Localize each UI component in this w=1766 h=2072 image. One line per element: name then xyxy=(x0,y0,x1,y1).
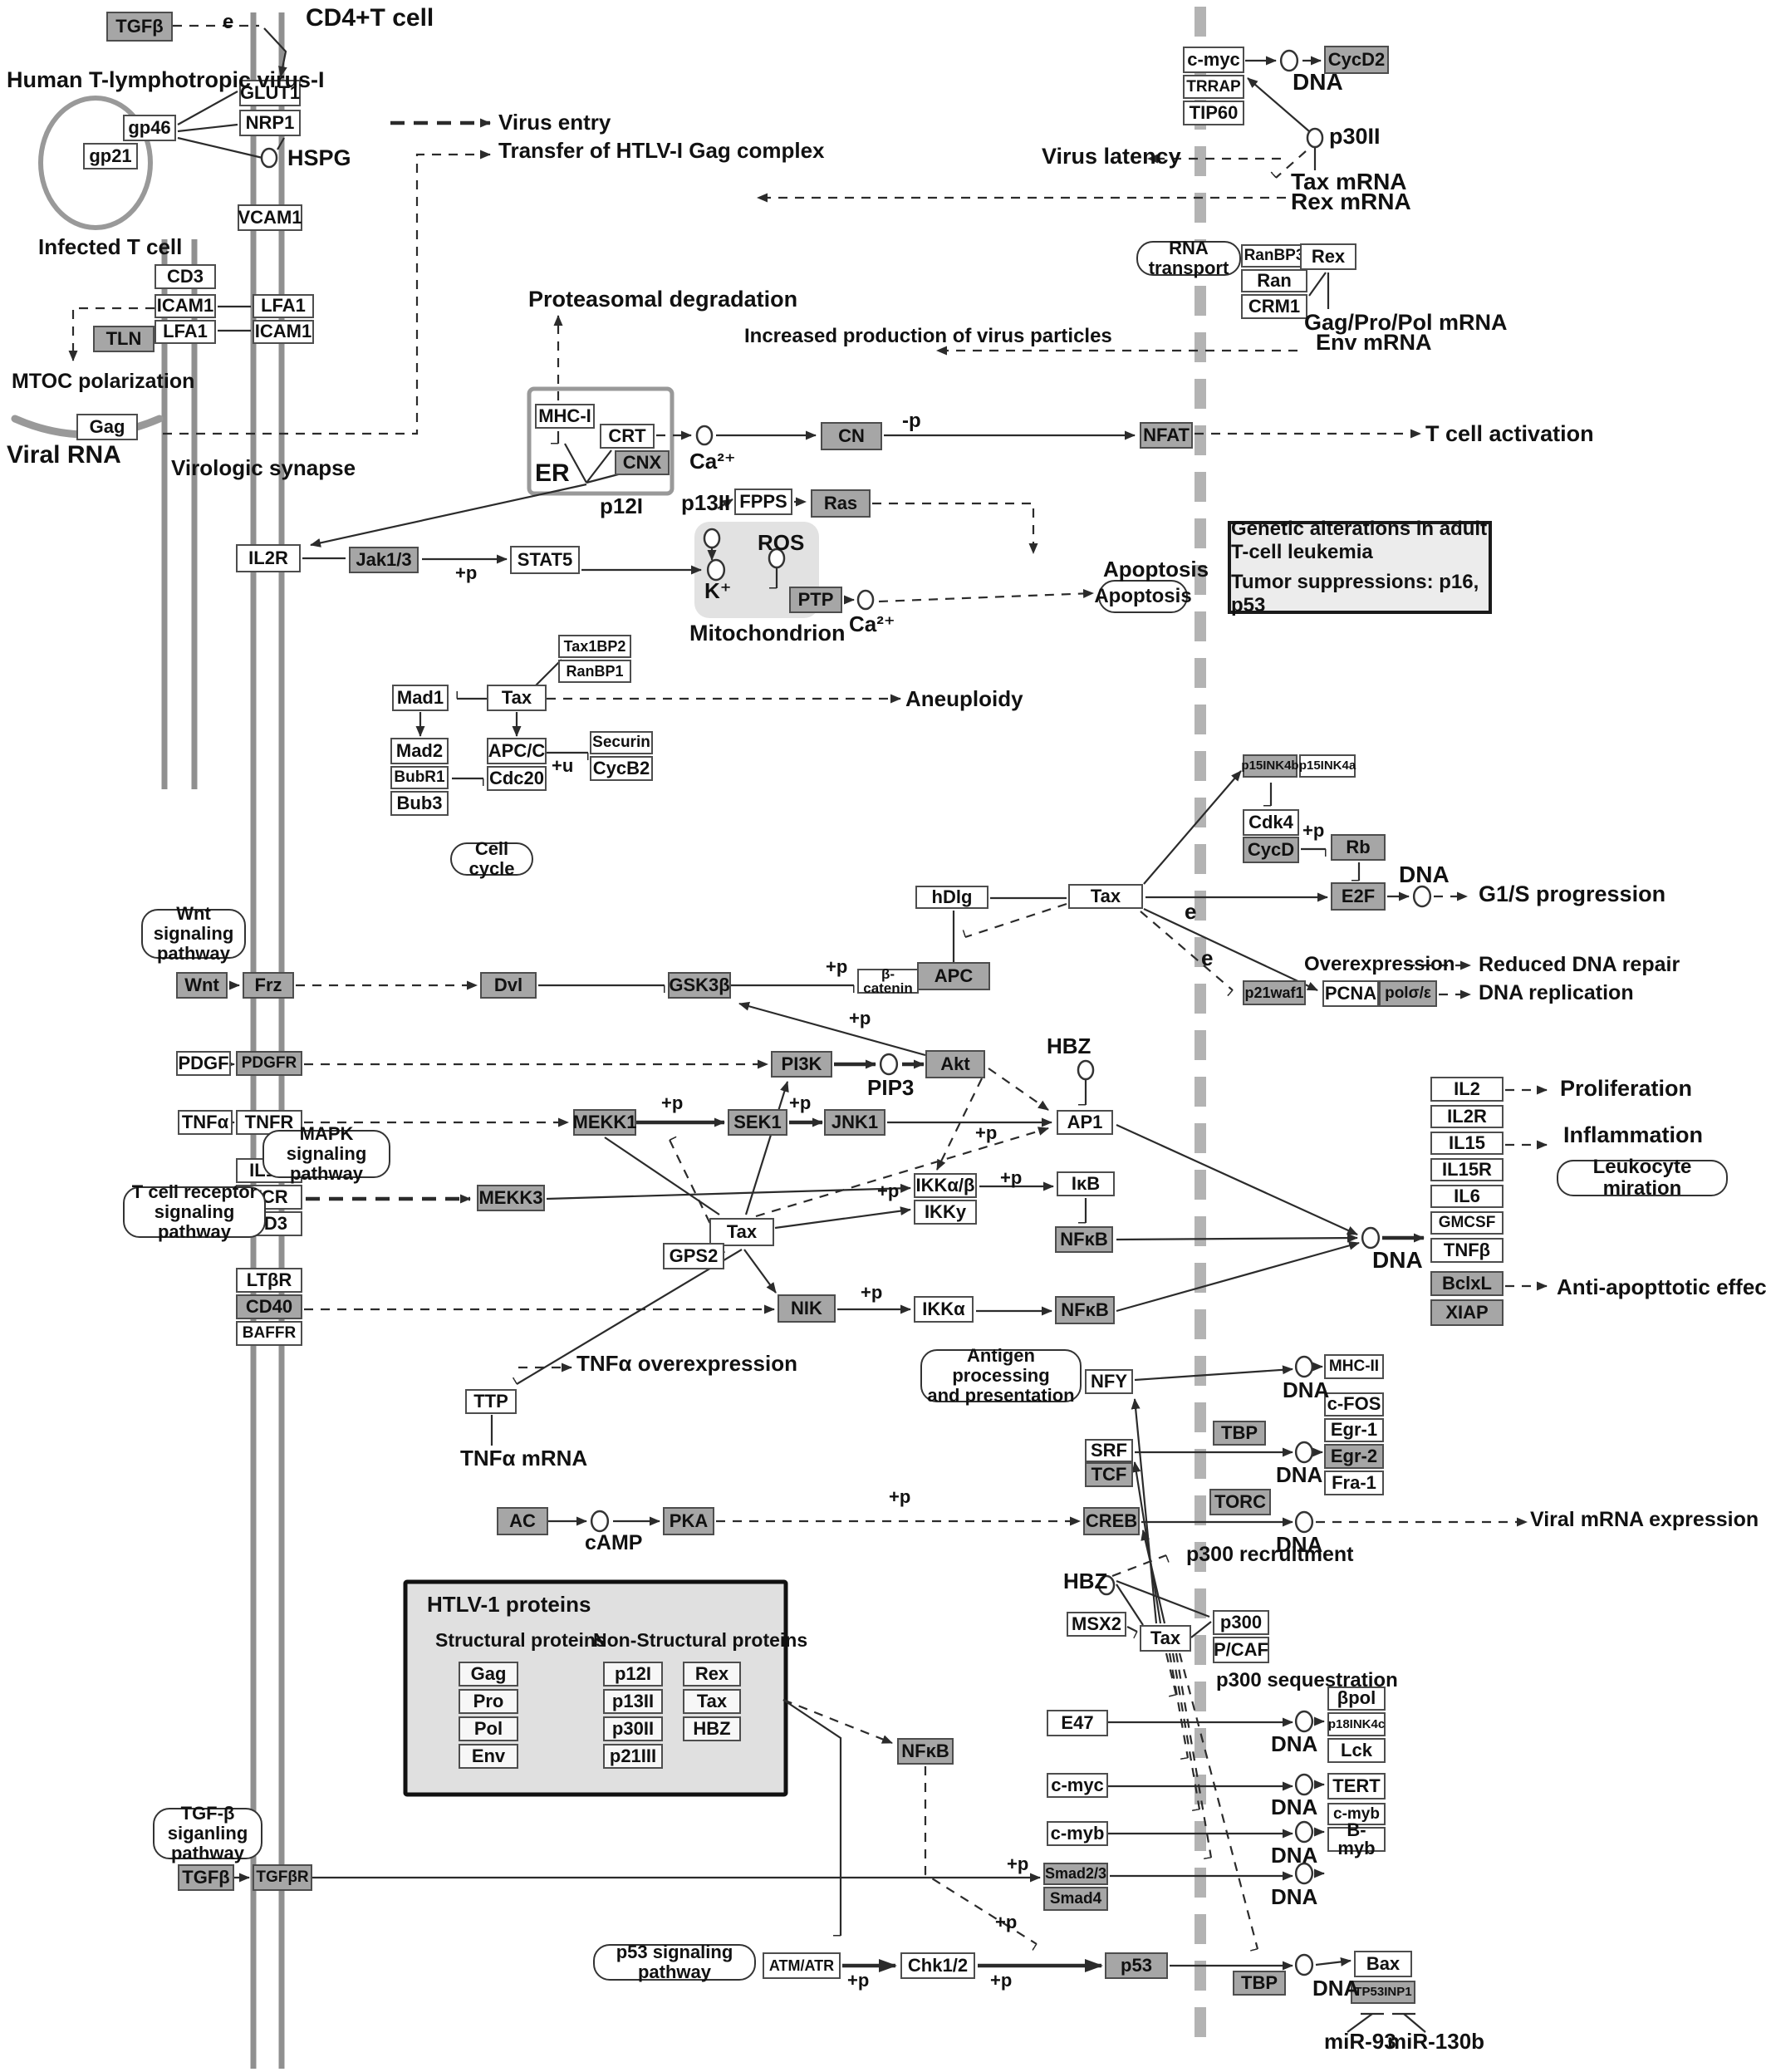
node-c-myc[interactable]: c-myc xyxy=(1183,47,1244,73)
edge-3 xyxy=(178,125,238,131)
node-tgf[interactable]: TGFβ xyxy=(106,12,173,42)
node-fpps[interactable]: FPPS xyxy=(734,489,792,515)
label-mir-93: miR-93 xyxy=(1324,2030,1396,2053)
node-e2f[interactable]: E2F xyxy=(1331,882,1386,911)
site-circle-7 xyxy=(881,1054,897,1074)
site-circle-16 xyxy=(1296,1512,1312,1532)
node-lfa1[interactable]: LFA1 xyxy=(155,320,216,344)
label-virus-entry: Virus entry xyxy=(498,111,611,134)
pathway-wnt-signaling-pathway[interactable]: Wnt signaling pathway xyxy=(141,909,246,959)
label-hbz: HBZ xyxy=(1047,1035,1091,1058)
edge-41 xyxy=(1144,771,1241,884)
label-mitochondrion: Mitochondrion xyxy=(689,621,845,645)
label-dna: DNA xyxy=(1271,1733,1317,1755)
label-inflammation: Inflammation xyxy=(1563,1123,1703,1146)
genetic-alterations-line2: Tumor suppressions: p16, p53 xyxy=(1231,571,1489,617)
label-hspg: HSPG xyxy=(287,146,351,169)
label-htlv-1-proteins: HTLV-1 proteins xyxy=(427,1593,591,1616)
node-ikk-2[interactable]: IKKα xyxy=(914,1296,974,1323)
edge-2 xyxy=(178,91,238,125)
label-pip3: PIP3 xyxy=(867,1077,914,1099)
node-crt[interactable]: CRT xyxy=(600,424,655,449)
site-circle-13 xyxy=(1362,1228,1379,1248)
label-p: +p xyxy=(661,1093,683,1112)
label-ca: Ca²⁺ xyxy=(689,450,736,473)
label-cd4-t-cell: CD4+T cell xyxy=(306,5,434,32)
node-mad1[interactable]: Mad1 xyxy=(392,685,449,711)
node-p18ink4c[interactable]: p18INK4c xyxy=(1327,1712,1386,1736)
label-hbz: HBZ xyxy=(1063,1570,1107,1593)
label-p: +p xyxy=(861,1283,882,1302)
node-e47[interactable]: E47 xyxy=(1047,1710,1108,1736)
edge-61 xyxy=(988,1068,1048,1110)
node-cdk4[interactable]: Cdk4 xyxy=(1243,809,1299,836)
node-jnk1[interactable]: JNK1 xyxy=(824,1109,885,1136)
label-overexpression: Overexpression xyxy=(1304,954,1454,975)
node-gp46[interactable]: gp46 xyxy=(123,115,176,141)
node-wnt[interactable]: Wnt xyxy=(176,972,228,999)
label-virus-latency: Virus latency xyxy=(1042,145,1181,168)
node-pol[interactable]: polσ/ε xyxy=(1379,980,1437,1007)
site-circle-12 xyxy=(1414,886,1430,906)
node-nf-b-2[interactable]: NFκB xyxy=(1055,1296,1115,1324)
site-circle-18 xyxy=(1296,1775,1312,1795)
node-lfa1-2[interactable]: LFA1 xyxy=(253,294,314,318)
node-ras[interactable]: Ras xyxy=(811,489,871,518)
pathway-rna-transport[interactable]: RNA transport xyxy=(1136,241,1241,276)
node-nf-b[interactable]: NFκB xyxy=(1055,1226,1113,1253)
node-icam1-2[interactable]: ICAM1 xyxy=(253,320,314,344)
pathway-t-cell-receptor-signaling-pathway[interactable]: T cell receptor signaling pathway xyxy=(123,1186,266,1238)
node-tgf-2[interactable]: TGFβ xyxy=(178,1864,234,1891)
node-mekk3[interactable]: MEKK3 xyxy=(477,1185,545,1211)
label-p: +p xyxy=(975,1123,997,1142)
label-p30ii: p30II xyxy=(1329,125,1381,148)
label-p: +p xyxy=(1000,1168,1022,1187)
edge-43 xyxy=(1144,909,1317,990)
edge-56 xyxy=(739,1004,925,1055)
label-ros: ROS xyxy=(758,532,804,554)
site-circle-2 xyxy=(858,591,873,609)
label-p: -p xyxy=(902,410,921,431)
node-tln[interactable]: TLN xyxy=(93,326,155,352)
node-il15[interactable]: IL15 xyxy=(1430,1132,1504,1155)
node-lt-r[interactable]: LTβR xyxy=(236,1268,302,1293)
site-circle-3 xyxy=(708,560,724,580)
node-ttp[interactable]: TTP xyxy=(465,1389,517,1414)
node-rb[interactable]: Rb xyxy=(1331,834,1386,861)
label-dna: DNA xyxy=(1271,1796,1317,1819)
node-gps2[interactable]: GPS2 xyxy=(663,1243,724,1269)
label-proliferation: Proliferation xyxy=(1560,1077,1692,1100)
node-tax-4[interactable]: Tax xyxy=(1140,1625,1191,1652)
node-stat5[interactable]: STAT5 xyxy=(510,546,580,574)
node-rex-2[interactable]: Rex xyxy=(683,1662,741,1687)
edge-39 xyxy=(965,904,1067,937)
node-il15r[interactable]: IL15R xyxy=(1430,1158,1504,1181)
site-circle-9 xyxy=(1307,129,1322,147)
pathway-leukocyte-miration[interactable]: Leukocyte miration xyxy=(1557,1160,1728,1196)
node-mhc-ii[interactable]: MHC-II xyxy=(1324,1354,1384,1379)
node-ap1[interactable]: AP1 xyxy=(1057,1110,1113,1135)
node-xiap[interactable]: XIAP xyxy=(1430,1299,1504,1326)
node-nfy[interactable]: NFY xyxy=(1085,1369,1133,1394)
label-dna: DNA xyxy=(1312,1977,1359,2000)
site-circle-14 xyxy=(1296,1357,1312,1377)
label-dna: DNA xyxy=(1276,1464,1322,1486)
edge-109 xyxy=(783,1700,841,1936)
node-p21iii[interactable]: p21III xyxy=(603,1744,663,1769)
edge-103 xyxy=(1143,1530,1165,1623)
node-env[interactable]: Env xyxy=(459,1744,518,1769)
pathway-p53-signaling-pathway[interactable]: p53 signaling pathway xyxy=(593,1944,756,1981)
node-b-myb[interactable]: B-myb xyxy=(1327,1827,1386,1852)
node-msx2[interactable]: MSX2 xyxy=(1067,1612,1126,1637)
node-lck[interactable]: Lck xyxy=(1327,1738,1386,1763)
label-proteasomal-degradation: Proteasomal degradation xyxy=(528,287,797,311)
pathway-mapk-signaling-pathway[interactable]: MAPK signaling pathway xyxy=(262,1130,390,1178)
label-apoptosis: Apoptosis xyxy=(1103,558,1209,581)
node-crm1[interactable]: CRM1 xyxy=(1241,294,1307,319)
label-k: K⁺ xyxy=(704,580,732,602)
node-apc[interactable]: APC xyxy=(917,962,990,990)
label-dna: DNA xyxy=(1271,1886,1317,1908)
pathway-apoptosis[interactable]: Apoptosis xyxy=(1098,580,1188,613)
node-p-caf[interactable]: P/CAF xyxy=(1213,1637,1269,1663)
label-dna: DNA xyxy=(1293,70,1343,94)
edge-102 xyxy=(1135,1462,1160,1623)
label-structural-proteins: Structural proteins xyxy=(435,1630,606,1650)
label-p: +p xyxy=(889,1487,910,1506)
label-mir-130b: miR-130b xyxy=(1387,2030,1484,2053)
node-chk1-2[interactable]: Chk1/2 xyxy=(900,1952,975,1979)
label-viral-mrna-expression: Viral mRNA expression xyxy=(1530,1509,1759,1530)
node-gmcsf[interactable]: GMCSF xyxy=(1430,1211,1504,1235)
label-aneuploidy: Aneuploidy xyxy=(905,688,1023,710)
edge-16 xyxy=(311,484,586,545)
node-mad2[interactable]: Mad2 xyxy=(390,738,449,764)
node-smad4[interactable]: Smad4 xyxy=(1043,1887,1108,1911)
edge-74 xyxy=(746,1082,787,1215)
label-dna: DNA xyxy=(1372,1248,1423,1272)
edge-77 xyxy=(744,1250,776,1293)
edge-126 xyxy=(1180,1653,1258,1949)
node-tip60[interactable]: TIP60 xyxy=(1183,101,1244,125)
node-gp21[interactable]: gp21 xyxy=(83,143,138,169)
node-creb[interactable]: CREB xyxy=(1083,1507,1140,1535)
label-e: e xyxy=(1201,947,1213,970)
node-cycb2[interactable]: CycB2 xyxy=(590,756,653,781)
node-jak1-3[interactable]: Jak1/3 xyxy=(349,547,419,573)
node-il2r[interactable]: IL2R xyxy=(236,544,301,572)
node-pi3k[interactable]: PI3K xyxy=(771,1051,832,1078)
node-c-fos[interactable]: c-FOS xyxy=(1324,1392,1384,1417)
node-tbp[interactable]: TBP xyxy=(1213,1421,1266,1446)
edge-73 xyxy=(605,1137,719,1215)
node-ranbp3[interactable]: RanBP3 xyxy=(1241,244,1307,268)
node-rex[interactable]: Rex xyxy=(1300,243,1356,270)
edge-92 xyxy=(1135,1369,1293,1380)
node-tax-5[interactable]: Tax xyxy=(683,1689,741,1714)
site-circle-10 xyxy=(1078,1061,1093,1079)
label-mtoc-polarization: MTOC polarization xyxy=(12,371,194,392)
label-increased-production-of-virus-particles: Increased production of virus particles xyxy=(744,326,1112,346)
node-tnf-2[interactable]: TNFβ xyxy=(1430,1238,1504,1263)
node-tax-2[interactable]: Tax xyxy=(1068,884,1143,909)
node-sek1[interactable]: SEK1 xyxy=(728,1109,787,1136)
label-camp: cAMP xyxy=(585,1532,642,1554)
node-tp53inp1[interactable]: TP53INP1 xyxy=(1351,1981,1415,2004)
edge-142 xyxy=(1309,273,1326,296)
node-ikky[interactable]: IKKy xyxy=(914,1200,977,1225)
node-catenin[interactable]: β-catenin xyxy=(857,969,919,994)
node-mhc-i[interactable]: MHC-I xyxy=(535,404,595,429)
label-p: +p xyxy=(1302,821,1324,840)
node-cn[interactable]: CN xyxy=(821,422,882,450)
node-apc-c[interactable]: APC/C xyxy=(487,738,547,764)
label-p: +p xyxy=(990,1971,1012,1990)
node-tax1bp2[interactable]: Tax1BP2 xyxy=(558,635,631,658)
label-ca: Ca²⁺ xyxy=(849,613,895,636)
pathway-cell-cycle[interactable]: Cell cycle xyxy=(450,842,533,876)
node-cd40[interactable]: CD40 xyxy=(236,1294,302,1319)
label-p: +p xyxy=(826,957,847,976)
edge-4 xyxy=(178,138,262,158)
node-ranbp1[interactable]: RanBP1 xyxy=(558,660,631,683)
edge-69 xyxy=(1116,1125,1357,1235)
label-p: +p xyxy=(455,563,477,582)
label-dna: DNA xyxy=(1399,862,1450,886)
node-nrp1[interactable]: NRP1 xyxy=(239,110,301,136)
node-nfat[interactable]: NFAT xyxy=(1140,422,1193,449)
edge-106 xyxy=(1112,1555,1166,1576)
node-trrap[interactable]: TRRAP xyxy=(1183,75,1244,99)
node-cycd[interactable]: CycD xyxy=(1243,837,1299,863)
edge-107 xyxy=(1127,1627,1137,1632)
node-tax-3[interactable]: Tax xyxy=(709,1218,774,1246)
node-securin[interactable]: Securin xyxy=(590,731,653,754)
node-tbp-2[interactable]: TBP xyxy=(1233,1971,1286,1996)
site-circle-5 xyxy=(704,529,719,547)
label-dna: DNA xyxy=(1283,1379,1329,1402)
label-g1-s-progression: G1/S progression xyxy=(1479,882,1665,906)
node-ikk[interactable]: IKKα/β xyxy=(914,1173,977,1198)
node-ptp[interactable]: PTP xyxy=(789,587,842,613)
pathway-diagram: Genetic alterations in adult T-cell leuk… xyxy=(0,0,1766,2072)
label-virologic-synapse: Virologic synapse xyxy=(171,457,356,479)
node-tcf[interactable]: TCF xyxy=(1085,1462,1133,1487)
label-dna: DNA xyxy=(1271,1844,1317,1867)
node-pdgf[interactable]: PDGF xyxy=(176,1051,231,1076)
label-non-structural-proteins: Non-Structural proteins xyxy=(593,1630,807,1650)
node-p30ii[interactable]: p30II xyxy=(603,1716,663,1741)
node-hbz[interactable]: HBZ xyxy=(683,1716,741,1741)
node-c-myc-2[interactable]: c-myc xyxy=(1047,1773,1108,1798)
node-dvl[interactable]: Dvl xyxy=(480,972,537,999)
site-circle-17 xyxy=(1296,1711,1312,1731)
node-bclxl[interactable]: BclxL xyxy=(1430,1271,1504,1296)
node-c-myb[interactable]: c-myb xyxy=(1047,1821,1108,1846)
site-circle-8 xyxy=(1281,51,1298,71)
label-p: +p xyxy=(995,1912,1017,1932)
node-bub3[interactable]: Bub3 xyxy=(390,791,449,816)
edge-22 xyxy=(872,503,1033,553)
node-il6[interactable]: IL6 xyxy=(1430,1185,1504,1208)
edge-72 xyxy=(775,1210,910,1228)
label-anti-apopttotic-effect: Anti-apopttotic effect xyxy=(1557,1276,1766,1299)
node-egr-2[interactable]: Egr-2 xyxy=(1324,1444,1384,1469)
site-circle-15 xyxy=(1296,1442,1312,1462)
node-icam1[interactable]: ICAM1 xyxy=(155,294,216,318)
label-p: +p xyxy=(877,1181,899,1200)
site-circle-1 xyxy=(697,426,712,444)
edge-130 xyxy=(1316,1961,1351,1965)
node-mekk1[interactable]: MEKK1 xyxy=(573,1109,636,1136)
label-rex-mrna: Rex mRNA xyxy=(1291,189,1411,214)
label-tnf-overexpression: TNFα overexpression xyxy=(576,1353,797,1375)
label-e: e xyxy=(223,12,233,32)
node-p53[interactable]: p53 xyxy=(1105,1952,1168,1979)
node-tert[interactable]: TERT xyxy=(1327,1773,1386,1799)
node-cnx[interactable]: CNX xyxy=(615,450,670,475)
node-nf-b-3[interactable]: NFκB xyxy=(897,1738,954,1765)
label-p: +p xyxy=(849,1009,871,1028)
node-nik[interactable]: NIK xyxy=(778,1294,836,1323)
label-p300-sequestration: p300 sequestration xyxy=(1216,1670,1398,1691)
label-human-t-lymphotropic-virus-i: Human T-lymphotropic virus-I xyxy=(7,68,325,91)
node-gag[interactable]: Gag xyxy=(76,414,138,440)
label-er: ER xyxy=(535,460,570,487)
node-pka[interactable]: PKA xyxy=(663,1507,714,1535)
node-smad2-3[interactable]: Smad2/3 xyxy=(1043,1863,1108,1885)
edge-84 xyxy=(1116,1238,1357,1240)
node-p21waf1[interactable]: p21waf1 xyxy=(1243,980,1306,1005)
node-pdgfr[interactable]: PDGFR xyxy=(236,1051,302,1076)
label-transfer-of-htlv-i-gag-complex: Transfer of HTLV-I Gag complex xyxy=(498,140,825,162)
edge-81 xyxy=(1116,1243,1359,1311)
label-u: +u xyxy=(552,756,573,775)
genetic-alterations-line1: Genetic alterations in adult T-cell leuk… xyxy=(1231,518,1489,564)
node-tax[interactable]: Tax xyxy=(487,685,547,711)
node-vcam1[interactable]: VCAM1 xyxy=(238,204,302,231)
node-pol-3[interactable]: Pol xyxy=(459,1716,518,1741)
label-t-cell-activation: T cell activation xyxy=(1425,422,1594,445)
node-fra-1[interactable]: Fra-1 xyxy=(1324,1471,1384,1495)
node-i-b[interactable]: IκB xyxy=(1057,1171,1115,1196)
label-env-mrna: Env mRNA xyxy=(1316,331,1432,354)
node-p15ink4a[interactable]: p15INK4a xyxy=(1299,754,1356,778)
node-gsk3[interactable]: GSK3β xyxy=(668,972,731,999)
node-ac[interactable]: AC xyxy=(497,1507,548,1535)
label-dna-replication: DNA replication xyxy=(1479,982,1634,1004)
node-baffr[interactable]: BAFFR xyxy=(236,1321,302,1346)
site-circle-21 xyxy=(1296,1955,1312,1975)
site-circle-0 xyxy=(262,149,277,167)
node-pcna[interactable]: PCNA xyxy=(1322,980,1379,1007)
label-p300-recruitment: p300 recruitment xyxy=(1186,1544,1353,1565)
label-p13ii: p13II xyxy=(681,492,730,514)
edge-71 xyxy=(547,1188,910,1199)
node-il2[interactable]: IL2 xyxy=(1430,1077,1504,1102)
node-tgf-r[interactable]: TGFβR xyxy=(253,1864,312,1891)
site-circle-19 xyxy=(1296,1822,1312,1842)
node-p13ii[interactable]: p13II xyxy=(603,1689,663,1714)
node-pro[interactable]: Pro xyxy=(459,1689,518,1714)
pathway-antigen-processing-and-presentation[interactable]: Antigen processing and presentation xyxy=(920,1349,1082,1402)
node-torc[interactable]: TORC xyxy=(1209,1489,1271,1515)
node-gag-2[interactable]: Gag xyxy=(459,1662,518,1687)
node-ran[interactable]: Ran xyxy=(1241,269,1307,292)
label-p: +p xyxy=(789,1093,811,1112)
label-p: +p xyxy=(1007,1854,1028,1873)
node-frz[interactable]: Frz xyxy=(243,972,294,999)
label-reduced-dna-repair: Reduced DNA repair xyxy=(1479,954,1680,975)
node-akt[interactable]: Akt xyxy=(925,1050,985,1078)
label-infected-t-cell: Infected T cell xyxy=(38,236,182,258)
label-viral-rna: Viral RNA xyxy=(7,442,121,469)
node-hdlg[interactable]: hDlg xyxy=(915,886,988,909)
site-circle-6 xyxy=(591,1511,608,1531)
label-e: e xyxy=(1185,901,1196,923)
node-p15ink4b[interactable]: p15INK4b xyxy=(1243,754,1298,778)
node-bubr1[interactable]: BubR1 xyxy=(390,766,449,789)
edge-28 xyxy=(879,593,1093,601)
label-p: +p xyxy=(847,1971,869,1990)
node-cd3[interactable]: CD3 xyxy=(155,264,216,289)
node-cdc20[interactable]: Cdc20 xyxy=(487,766,547,791)
node-atm-atr[interactable]: ATM/ATR xyxy=(763,1952,841,1979)
node-egr-1[interactable]: Egr-1 xyxy=(1324,1418,1384,1442)
node-tnf[interactable]: TNFα xyxy=(178,1110,233,1135)
node-srf[interactable]: SRF xyxy=(1085,1439,1133,1462)
pathway-tgf-siganling-pathway[interactable]: TGF-β siganling pathway xyxy=(153,1808,262,1859)
label-p12i: p12I xyxy=(600,495,643,518)
node-bax[interactable]: Bax xyxy=(1354,1951,1412,1977)
node-il2r-2[interactable]: IL2R xyxy=(1430,1105,1504,1128)
node-p300[interactable]: p300 xyxy=(1213,1610,1269,1635)
node-p12i[interactable]: p12I xyxy=(603,1662,663,1687)
label-tnf-mrna: TNFα mRNA xyxy=(460,1447,587,1470)
genetic-alterations-box: Genetic alterations in adult T-cell leuk… xyxy=(1228,521,1492,614)
